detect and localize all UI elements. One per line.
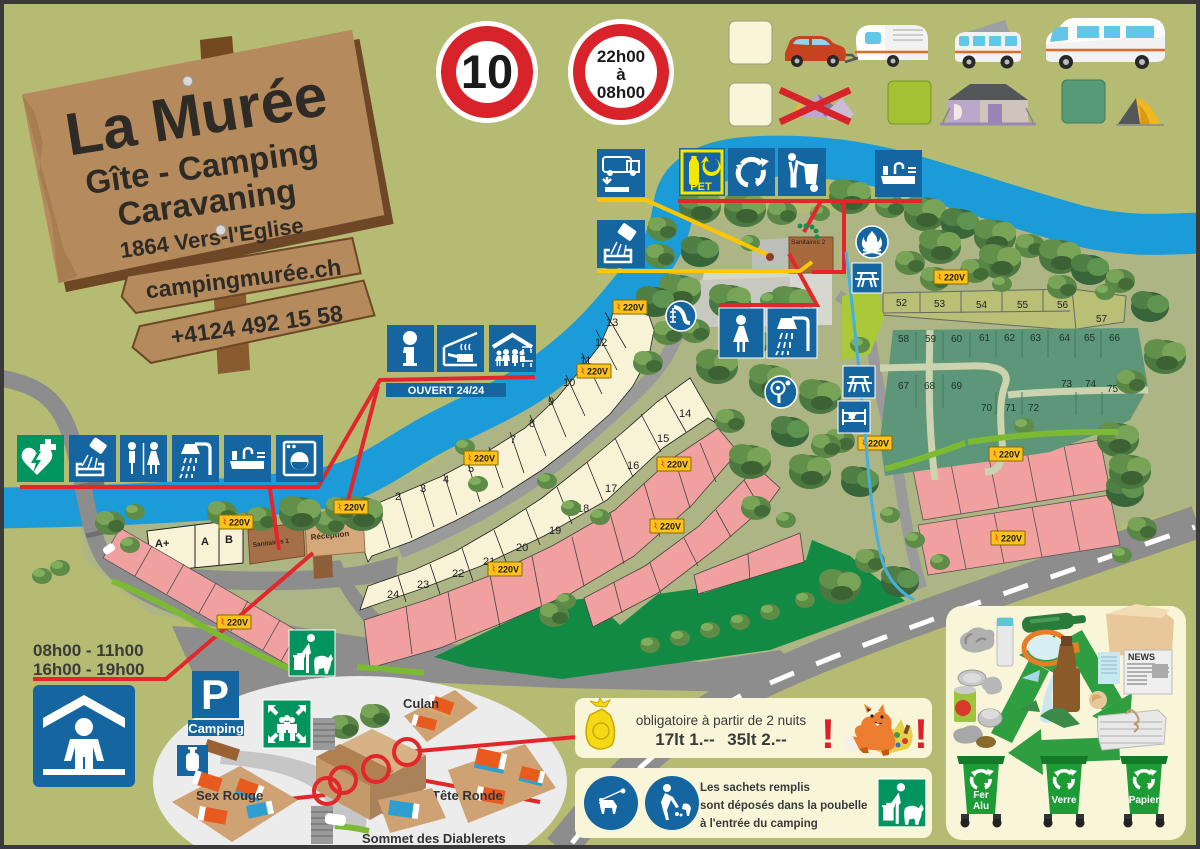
- svg-text:64: 64: [1059, 333, 1071, 344]
- svg-text:65: 65: [1084, 333, 1096, 344]
- svg-text:2: 2: [395, 491, 401, 503]
- svg-text:16: 16: [627, 460, 639, 472]
- svg-text:Verre: Verre: [1051, 795, 1076, 806]
- svg-text:74: 74: [1085, 379, 1097, 390]
- svg-text:57: 57: [1096, 314, 1108, 325]
- svg-text:08h00 - 11h00: 08h00 - 11h00: [33, 641, 144, 660]
- svg-text:3: 3: [420, 483, 426, 495]
- svg-text:22h00: 22h00: [597, 47, 645, 66]
- svg-text:sont déposés dans la poubelle: sont déposés dans la poubelle: [700, 800, 867, 812]
- svg-text:13: 13: [606, 317, 618, 329]
- svg-text:Fer: Fer: [973, 790, 989, 801]
- svg-text:62: 62: [1004, 333, 1016, 344]
- svg-text:!: !: [914, 710, 928, 757]
- svg-text:67: 67: [898, 381, 910, 392]
- svg-text:17lt 1.--: 17lt 1.--: [655, 730, 715, 749]
- svg-text:Sex Rouge: Sex Rouge: [196, 788, 263, 803]
- svg-text:56: 56: [1057, 300, 1069, 311]
- svg-text:20: 20: [516, 542, 528, 554]
- svg-text:53: 53: [934, 299, 946, 310]
- svg-text:9: 9: [548, 396, 554, 408]
- svg-text:19: 19: [549, 525, 561, 537]
- svg-text:4: 4: [443, 474, 449, 486]
- svg-text:24: 24: [387, 589, 399, 601]
- svg-text:OUVERT 24/24: OUVERT 24/24: [408, 385, 485, 397]
- svg-text:Culan: Culan: [403, 696, 439, 711]
- svg-text:Sommet des Diablerets: Sommet des Diablerets: [362, 831, 506, 846]
- svg-text:10: 10: [563, 377, 575, 389]
- svg-text:68: 68: [924, 381, 936, 392]
- svg-text:60: 60: [951, 334, 963, 345]
- svg-text:Tête Ronde: Tête Ronde: [432, 788, 503, 803]
- svg-text:73: 73: [1061, 379, 1073, 390]
- svg-text:71: 71: [1005, 403, 1017, 414]
- svg-text:59: 59: [925, 334, 937, 345]
- svg-text:obligatoire à partir de 2 nuit: obligatoire à partir de 2 nuits: [636, 713, 807, 728]
- svg-text:Alu: Alu: [973, 801, 989, 812]
- svg-text:A+: A+: [155, 538, 169, 550]
- svg-text:P: P: [201, 671, 229, 718]
- svg-text:8: 8: [529, 418, 535, 430]
- svg-text:61: 61: [979, 333, 991, 344]
- svg-text:7: 7: [510, 434, 516, 446]
- svg-text:23: 23: [417, 579, 429, 591]
- svg-text:10: 10: [461, 45, 513, 98]
- svg-text:16h00 - 19h00: 16h00 - 19h00: [33, 660, 145, 679]
- svg-text:22: 22: [452, 568, 464, 580]
- svg-text:63: 63: [1030, 333, 1042, 344]
- svg-text:69: 69: [951, 381, 963, 392]
- svg-text:NEWS: NEWS: [1128, 652, 1155, 662]
- svg-text:14: 14: [679, 408, 691, 420]
- svg-text:B: B: [225, 534, 233, 546]
- svg-text:72: 72: [1028, 403, 1040, 414]
- svg-text:Les sachets remplis: Les sachets remplis: [700, 782, 810, 794]
- svg-text:à: à: [616, 65, 626, 84]
- svg-text:66: 66: [1109, 333, 1121, 344]
- svg-text:35lt 2.--: 35lt 2.--: [727, 730, 787, 749]
- svg-text:52: 52: [896, 298, 908, 309]
- svg-text:08h00: 08h00: [597, 83, 645, 102]
- svg-text:58: 58: [898, 334, 910, 345]
- svg-text:PET: PET: [690, 181, 712, 193]
- svg-text:à l'entrée du camping: à l'entrée du camping: [700, 818, 818, 830]
- svg-text:70: 70: [981, 403, 993, 414]
- svg-text:55: 55: [1017, 300, 1029, 311]
- svg-text:Papier: Papier: [1129, 795, 1160, 806]
- svg-text:54: 54: [976, 300, 988, 311]
- svg-text:Sanitaires 2: Sanitaires 2: [791, 239, 826, 246]
- svg-text:A: A: [201, 536, 209, 548]
- svg-text:12: 12: [595, 337, 607, 349]
- svg-text:15: 15: [657, 433, 669, 445]
- svg-text:!: !: [821, 710, 835, 757]
- svg-text:Camping: Camping: [188, 721, 244, 736]
- svg-text:17: 17: [605, 483, 617, 495]
